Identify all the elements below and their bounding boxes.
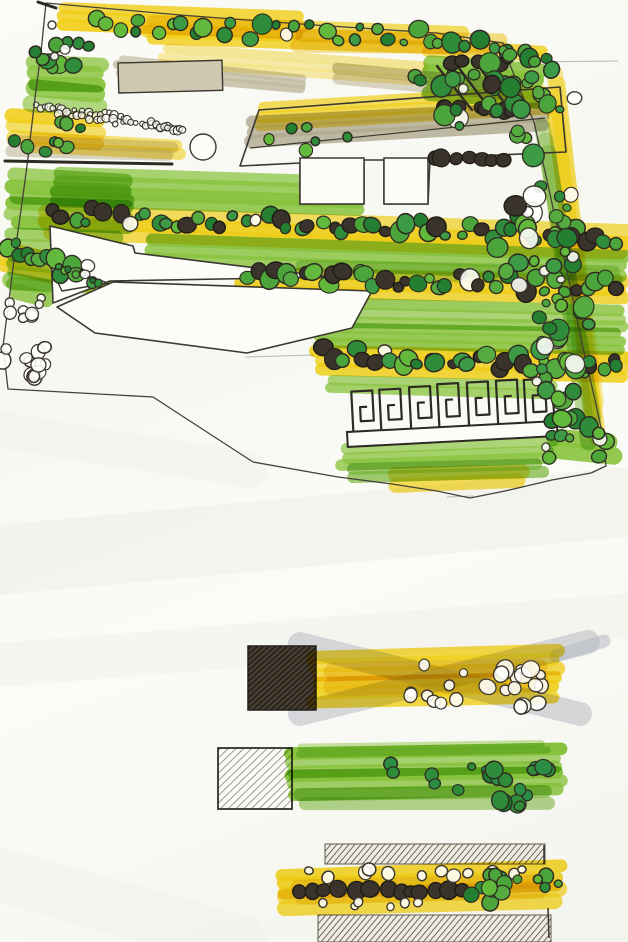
open-tree-icon xyxy=(31,357,47,372)
pebble-icon xyxy=(179,126,186,133)
green-tree-icon xyxy=(114,23,128,38)
open-tree-icon xyxy=(458,84,468,94)
pebble-icon xyxy=(112,121,118,127)
planting-legend-layer xyxy=(218,641,604,942)
marker-stroke xyxy=(395,472,523,474)
legend-item-tree-row-between-hatched-strips xyxy=(282,844,563,942)
open-tree-icon xyxy=(80,270,90,279)
green-tree-icon xyxy=(450,104,462,116)
open-tree-icon xyxy=(556,276,565,284)
green-tree-icon xyxy=(299,143,313,158)
dark-tree-icon xyxy=(455,55,469,67)
green-tree-icon xyxy=(242,31,259,46)
marker-band-stroke xyxy=(300,744,548,754)
green-tree-icon xyxy=(529,255,540,267)
green-tree-icon xyxy=(54,138,64,148)
pebble-icon xyxy=(50,106,56,112)
open-tree-icon xyxy=(542,443,551,452)
open-tree-icon xyxy=(567,91,583,105)
open-tree-icon xyxy=(419,659,430,671)
marker-band-meander-yellow-under xyxy=(395,472,523,486)
paper-crease xyxy=(0,502,628,560)
building-room xyxy=(300,158,364,204)
green-tree-icon xyxy=(524,70,539,84)
green-tree-icon xyxy=(160,218,172,229)
pebble-icon xyxy=(133,121,138,126)
green-tree-icon xyxy=(457,230,468,240)
site-plan-layer xyxy=(0,2,628,498)
green-tree-icon xyxy=(554,880,563,888)
marker-stroke xyxy=(301,744,541,748)
green-tree-icon xyxy=(264,133,275,145)
green-tree-icon xyxy=(131,26,141,37)
marker-stroke xyxy=(34,72,97,73)
small-slab-building xyxy=(118,60,223,93)
open-tree-icon xyxy=(450,693,463,707)
green-tree-icon xyxy=(440,231,451,240)
open-tree-icon xyxy=(50,52,59,61)
marker-stroke xyxy=(34,88,96,94)
green-tree-icon xyxy=(445,71,461,88)
pencil-guide-line xyxy=(245,355,313,357)
dark-tree-icon xyxy=(448,151,464,167)
legend-item-yellow-corridor-open-canopy xyxy=(248,641,604,715)
light-hatch-block xyxy=(218,748,292,809)
green-tree-icon xyxy=(283,271,299,287)
open-tree-icon xyxy=(400,898,409,908)
marker-stroke xyxy=(33,147,180,154)
marker-stroke xyxy=(300,750,548,754)
open-tree-icon xyxy=(35,300,44,309)
open-tree-icon xyxy=(362,863,376,876)
meander-hook xyxy=(379,389,402,431)
marker-stroke xyxy=(396,481,518,486)
building-room xyxy=(384,158,428,204)
hatched-strip xyxy=(325,844,545,864)
circle-feature xyxy=(48,21,56,29)
open-tree-icon xyxy=(318,898,327,908)
tree-row-dark-row-c xyxy=(428,146,512,170)
open-tree-icon xyxy=(518,866,527,874)
green-tree-icon xyxy=(139,208,151,220)
green-tree-icon xyxy=(536,364,547,374)
green-tree-icon xyxy=(511,125,524,137)
open-tree-icon xyxy=(304,866,314,875)
green-tree-icon xyxy=(565,434,574,443)
green-tree-icon xyxy=(225,17,236,28)
green-tree-icon xyxy=(582,318,596,330)
circle-feature xyxy=(190,134,216,160)
open-tree-icon xyxy=(3,305,18,320)
green-tree-icon xyxy=(533,874,543,884)
meander-hook xyxy=(351,390,374,431)
green-tree-icon xyxy=(468,69,481,81)
green-tree-icon xyxy=(555,106,564,114)
dark-tree-icon xyxy=(52,210,68,224)
landscape-site-plan-drawing xyxy=(0,0,628,942)
green-tree-icon xyxy=(545,258,562,274)
green-tree-icon xyxy=(598,362,612,376)
dense-hatch-block xyxy=(248,646,316,710)
marker-stroke xyxy=(300,791,546,794)
legend-item-green-corridor-dense-canopy xyxy=(218,744,562,816)
scanned-sketch-page xyxy=(0,0,628,942)
hatched-strip xyxy=(318,915,551,942)
tree-cluster-open-cluster-2 xyxy=(0,340,52,386)
marker-band-left-green-patch2 xyxy=(31,88,99,107)
open-tree-icon xyxy=(417,870,427,881)
paper-crease xyxy=(0,875,240,942)
green-tree-icon xyxy=(565,383,581,400)
pebble-icon xyxy=(86,116,94,124)
terrace-edge-line xyxy=(5,161,172,164)
open-tree-icon xyxy=(386,902,394,911)
green-tree-icon xyxy=(8,135,20,147)
dark-tree-icon xyxy=(360,881,379,898)
green-tree-icon xyxy=(64,266,71,274)
strip-end-tick xyxy=(548,908,549,938)
